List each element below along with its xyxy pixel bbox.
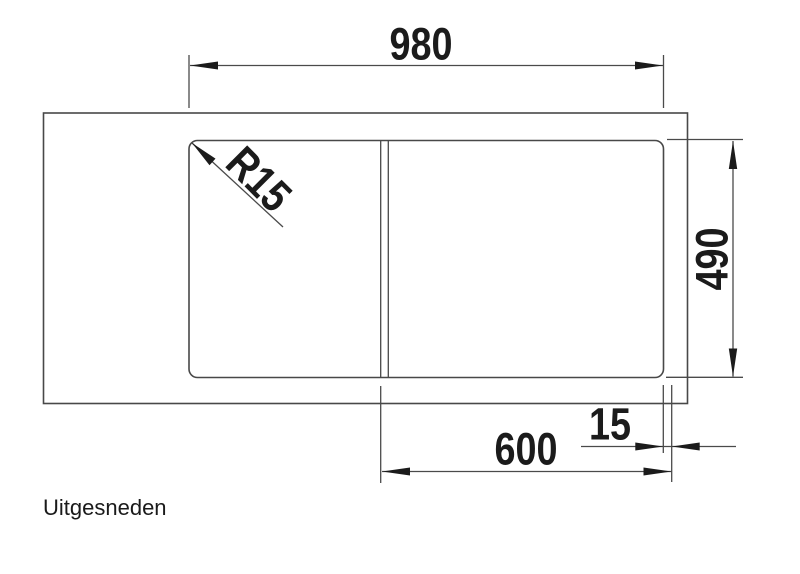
sink-cutout-drawing xyxy=(0,0,800,574)
dim-label-rim-offset: 15 xyxy=(589,402,631,447)
dimension-lines-group xyxy=(189,55,743,483)
arrowhead-980-right xyxy=(635,62,663,70)
dim-label-total-width: 980 xyxy=(389,22,452,67)
arrowhead-r15-leader xyxy=(192,143,216,165)
arrowhead-490-bottom xyxy=(729,349,737,377)
worktop-outline xyxy=(44,113,688,404)
arrowheads-group xyxy=(190,62,737,476)
arrowhead-600-right xyxy=(644,468,672,476)
drawing-caption: Uitgesneden xyxy=(43,495,167,521)
technical-drawing-canvas: 980 490 600 15 R15 Uitgesneden xyxy=(0,0,800,574)
dim-label-bowl-width: 600 xyxy=(494,427,557,472)
outline-group xyxy=(44,113,688,404)
dim-label-depth: 490 xyxy=(690,227,735,290)
arrowhead-15-right xyxy=(672,443,700,451)
arrowhead-980-left xyxy=(190,62,218,70)
arrowhead-600-left xyxy=(382,468,410,476)
arrowhead-15-left xyxy=(635,443,663,451)
arrowhead-490-top xyxy=(729,141,737,169)
